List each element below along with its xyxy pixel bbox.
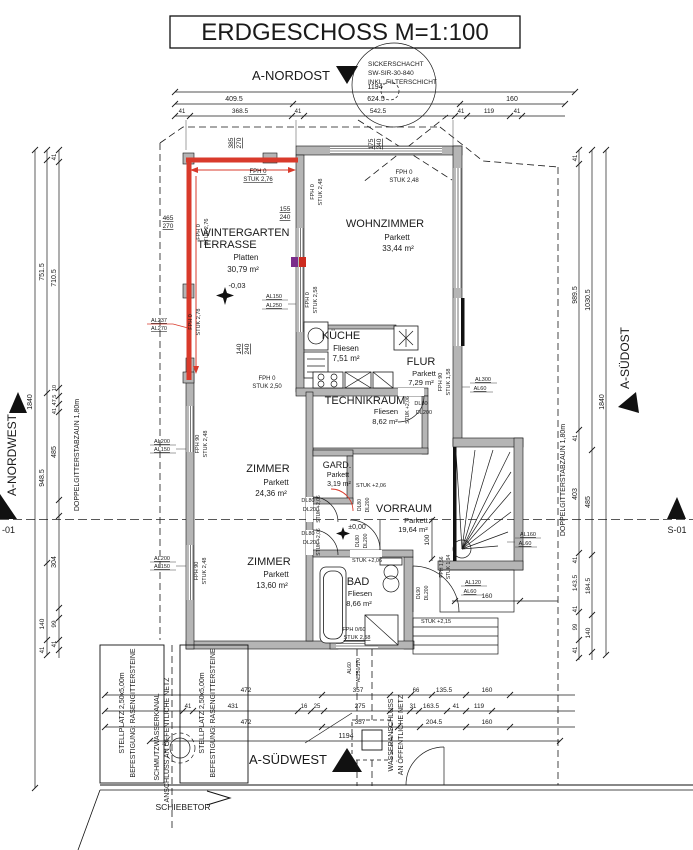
- dim-label: 357: [353, 687, 364, 694]
- dim-label: 41: [458, 109, 465, 115]
- tag-label: STUK +2,06: [316, 528, 322, 556]
- section-right-triangle-icon: [667, 497, 686, 519]
- tag-label: AL250/170: [356, 658, 362, 682]
- room-floor: Parkett: [412, 369, 437, 378]
- room-bad: BAD: [347, 576, 370, 588]
- tag-label: STUK +2,06: [356, 483, 386, 489]
- tag-label: FPH 0: [258, 376, 276, 382]
- tag-label: STUK 2,76: [243, 177, 273, 183]
- dim-label: 99: [51, 620, 58, 628]
- dim-label: 948.5: [39, 469, 46, 487]
- tag-label: STUK +2,15: [421, 619, 451, 625]
- water-box-outer: [352, 720, 392, 760]
- section-marker-label: -01: [2, 525, 15, 535]
- tag-label: DL80: [301, 498, 314, 504]
- stellplatz-note: BEFESTIGUNG: RASENGITTERSTEINE: [130, 648, 137, 777]
- room-area: 19,64 m²: [398, 525, 428, 534]
- sickerschacht-note: SW-SIR-30-840: [368, 70, 414, 77]
- tag-label: STUK 2,48: [389, 178, 419, 184]
- dim-label: 160: [482, 687, 493, 694]
- tag-label: FPH 0: [395, 170, 413, 176]
- tag-label: AL200: [154, 556, 170, 562]
- dim-label: 140: [39, 618, 46, 629]
- dim-label: 41: [514, 109, 521, 115]
- tag-label: AL160: [520, 532, 536, 538]
- dim-label: 41: [179, 109, 186, 115]
- dim-label: 41: [573, 605, 579, 612]
- stellplatz-note: STELLPLATZ 2,50x5,00m: [199, 672, 206, 753]
- dim-label: 270: [163, 223, 174, 230]
- tag-label: AL237: [151, 318, 167, 324]
- dim-label: 41: [40, 646, 46, 653]
- dim-label: 119: [474, 703, 485, 710]
- level-label: ±0,00: [348, 524, 366, 531]
- dim-label: 751.5: [39, 263, 46, 281]
- dim-label: 385: [228, 137, 235, 148]
- room-floor: Platten: [234, 253, 259, 262]
- dim-label: 542.5: [370, 108, 387, 115]
- tag-label: DL80: [355, 535, 361, 547]
- tag-label: DL200: [365, 497, 371, 512]
- room-floor: Parkett: [384, 233, 410, 242]
- stellplatz-note: STELLPLATZ 2,50x5,00m: [119, 672, 126, 753]
- room-area: 7,51 m²: [332, 354, 359, 363]
- tag-label: STUK +2,06: [316, 495, 322, 523]
- dim-label: 41: [52, 153, 58, 160]
- dim-label: 1840: [599, 394, 606, 410]
- tag-label: STUK 2,48: [318, 179, 324, 206]
- dim-label: 472: [241, 687, 252, 694]
- room-wintergarten: WINTERGARTEN: [200, 227, 289, 239]
- tag-label: AL270: [151, 326, 167, 332]
- tag-label: STUK 2,48: [202, 558, 208, 585]
- dim-label: 240: [376, 138, 383, 149]
- utility-note: WASSERANSCHLUSS: [388, 698, 395, 771]
- dim-label: 1194: [338, 733, 353, 740]
- tag-label: STUK 2,48: [203, 431, 209, 458]
- tag-label: FPH 90: [195, 435, 201, 454]
- dim-label: 485: [585, 496, 592, 508]
- tag-label: AL60: [464, 589, 477, 595]
- dim-label: 155: [280, 206, 291, 213]
- room-area: 33,44 m²: [382, 244, 414, 253]
- tag-label: AL60: [474, 386, 487, 392]
- dim-label: 119: [484, 108, 495, 115]
- room-kueche: KÜCHE: [322, 330, 361, 342]
- dim-label: 160: [506, 96, 518, 103]
- dim-label: 1030.5: [585, 289, 592, 311]
- compass-nordwest-label: A-NORDWEST: [5, 413, 19, 496]
- room-floor: Parkett: [263, 570, 289, 579]
- tag-label: FPH 1,56: [439, 556, 445, 577]
- dim-label: 1194: [367, 84, 382, 91]
- room-terrasse: TERRASSE: [197, 239, 256, 251]
- dim-label: 1840: [27, 394, 34, 410]
- compass-nordost-label: A-NORDOST: [252, 68, 330, 83]
- dim-label: 184.5: [585, 577, 592, 594]
- level-label: -0,03: [228, 281, 245, 290]
- dim-label: 16: [301, 704, 308, 710]
- tag-label: FPH 0/60: [342, 627, 365, 633]
- dim-label: 41: [573, 556, 579, 563]
- section-left-triangle-icon: [0, 494, 17, 519]
- dim-label: 275: [355, 703, 366, 710]
- dim-label: 160: [482, 593, 493, 600]
- tag-label: DL80: [357, 499, 363, 511]
- room-area: 30,79 m²: [227, 265, 259, 274]
- room-zimmer-1: ZIMMER: [246, 463, 289, 475]
- dim-label: 160: [482, 719, 493, 726]
- stairs: [453, 447, 511, 561]
- tag-label: DL200: [363, 533, 369, 548]
- shutter-bar: [461, 298, 465, 346]
- tag-label: STUK +2,06: [405, 396, 411, 424]
- entry-porch: [413, 570, 514, 654]
- window-marker-red: [299, 257, 306, 267]
- dim-label: 99: [573, 623, 579, 630]
- tag-label: FPH 0: [188, 314, 194, 330]
- dim-label: 624.5: [367, 96, 385, 103]
- tag-label: STUK 2,58: [313, 287, 319, 314]
- tag-label: FPH 90: [438, 373, 444, 392]
- fence-note: DOPPELGITTERSTABZAUN 1,80m: [560, 424, 567, 536]
- room-area: 8,62 m²: [372, 417, 398, 426]
- section-marker-label: S-01: [667, 525, 686, 535]
- suedost-triangle-icon: [618, 392, 639, 413]
- tag-label: STUK 2,78: [196, 309, 202, 336]
- dim-label: 140: [236, 343, 243, 354]
- tag-label: AL150: [154, 447, 170, 453]
- dim-label: 204.5: [426, 719, 443, 726]
- room-floor: Parkett: [263, 478, 289, 487]
- page-title: ERDGESCHOSS M=1:100: [201, 19, 488, 46]
- compass-suedost-label: A-SÜDOST: [618, 326, 632, 389]
- dim-label: 41: [52, 640, 58, 647]
- dim-label: 240: [244, 343, 251, 354]
- dim-label: 41: [295, 109, 302, 115]
- gate-arc: [406, 747, 444, 785]
- tag-label: DL200: [424, 585, 430, 600]
- dim-label: 710.5: [51, 269, 58, 287]
- room-vorraum: VORRAUM: [376, 503, 432, 515]
- tag-label: AL150: [266, 294, 282, 300]
- tag-label: FPH 0: [249, 169, 267, 175]
- tag-label: DL90: [416, 587, 422, 599]
- window-marker-violet: [291, 257, 298, 267]
- title-block: ERDGESCHOSS M=1:100: [170, 16, 520, 48]
- dim-label: 485: [51, 446, 58, 458]
- room-wohnzimmer: WOHNZIMMER: [346, 218, 424, 230]
- stellplatz-note: BEFESTIGUNG: RASENGITTERSTEINE: [210, 648, 217, 777]
- dim-label: 472: [241, 719, 252, 726]
- dim-label: 143.5: [572, 574, 579, 591]
- schiebetor-label: SCHIEBETOR: [155, 802, 210, 812]
- dim-label: 357: [355, 719, 366, 726]
- dim-label: 368.5: [232, 108, 249, 115]
- dim-label: 41: [573, 646, 579, 653]
- tag-label: AL60: [347, 662, 353, 674]
- tag-label: AL300: [475, 377, 491, 383]
- wintergarten-walls: [147, 158, 298, 380]
- dim-label: 431: [228, 703, 239, 710]
- dim-label: 989.5: [572, 286, 579, 304]
- tag-label: AL200: [154, 439, 170, 445]
- dim-label: 304: [51, 556, 58, 568]
- utility-note: SCHMUTZWASSERKANAL: [154, 693, 161, 780]
- dim-label: 175: [368, 138, 375, 149]
- nordost-triangle-icon: [336, 66, 358, 84]
- dim-label: 240: [280, 214, 291, 221]
- compass-suedwest-label: A-SÜDWEST: [249, 752, 327, 767]
- tag-label: FPH 0: [305, 292, 311, 308]
- floorplan-sheet: ERDGESCHOSS M=1:100: [0, 0, 693, 850]
- room-floor: Fliesen: [348, 589, 372, 598]
- tag-label: DL80: [301, 531, 314, 537]
- room-floor: Fliesen: [333, 344, 359, 353]
- utility-note: AN ÖFFENTLICHE NETZ: [397, 694, 405, 775]
- tag-label: AL150: [154, 564, 170, 570]
- dim-label: 41: [573, 434, 579, 441]
- tag-label: STUK 1,94: [446, 555, 452, 580]
- room-area: 3,19 m²: [327, 481, 351, 488]
- room-area: 8,66 m²: [346, 599, 372, 608]
- nordwest-triangle-icon: [9, 392, 27, 413]
- dim-label: 100: [424, 534, 431, 545]
- tag-label: AL250: [266, 303, 282, 309]
- water-box-inner: [362, 730, 382, 750]
- tag-label: STUK 2,50: [252, 384, 282, 390]
- dim-label: 41: [453, 704, 460, 710]
- dim-label: 41: [52, 408, 58, 414]
- room-technikraum: TECHNIKRAUM: [325, 395, 406, 407]
- room-area: 24,36 m²: [255, 489, 287, 498]
- room-floor: Parkett: [327, 472, 349, 479]
- room-floor: Parkett: [404, 516, 429, 525]
- chimney-icon: [394, 326, 418, 350]
- dim-label: 66: [413, 688, 420, 694]
- dim-label: 47.5: [52, 395, 58, 406]
- tag-label: STUK 2,58: [344, 635, 371, 641]
- fence-note: DOPPELGITTERSTABZAUN 1,80m: [74, 399, 81, 511]
- tag-label: FPH 90: [194, 562, 200, 581]
- dim-label: 409.5: [225, 96, 243, 103]
- dim-label: 41: [573, 154, 579, 161]
- dim-label: 403: [572, 488, 579, 500]
- dim-label: 140: [585, 627, 592, 638]
- tag-label: STUK +2,06: [352, 558, 382, 564]
- room-zimmer-2: ZIMMER: [247, 556, 290, 568]
- dim-label: 163.5: [423, 703, 440, 710]
- tag-label: FPH 0: [310, 184, 316, 200]
- sickerschacht-note: SICKERSCHACHT: [368, 61, 424, 68]
- dim-label: 41: [185, 704, 192, 710]
- room-area: 13,60 m²: [256, 581, 288, 590]
- dim-label: 465: [163, 215, 174, 222]
- marker-icons: [0, 66, 686, 772]
- room-flur: FLUR: [407, 356, 436, 368]
- tag-label: AL120: [465, 580, 481, 586]
- labels-layer: A-NORDOSTSICKERSCHACHTSW-SIR-30-840INKL.…: [2, 61, 687, 812]
- dim-label: 10: [52, 385, 58, 391]
- utility-note: ANSCHLUSS AN ÖFFENTLICHE NETZ: [163, 677, 171, 803]
- room-floor: Fliesen: [374, 407, 398, 416]
- dim-label: 135.5: [436, 687, 453, 694]
- room-gard: GARD.: [323, 460, 352, 470]
- tag-label: STUK 1,58: [446, 369, 452, 396]
- room-area: 7,29 m²: [408, 378, 434, 387]
- tag-label: AL60: [519, 541, 532, 547]
- tag-label: DL80: [414, 401, 427, 407]
- dim-label: 270: [236, 137, 243, 148]
- dim-label: 31: [410, 704, 417, 710]
- dim-label: 25: [314, 704, 321, 710]
- tag-label: DL200: [416, 410, 432, 416]
